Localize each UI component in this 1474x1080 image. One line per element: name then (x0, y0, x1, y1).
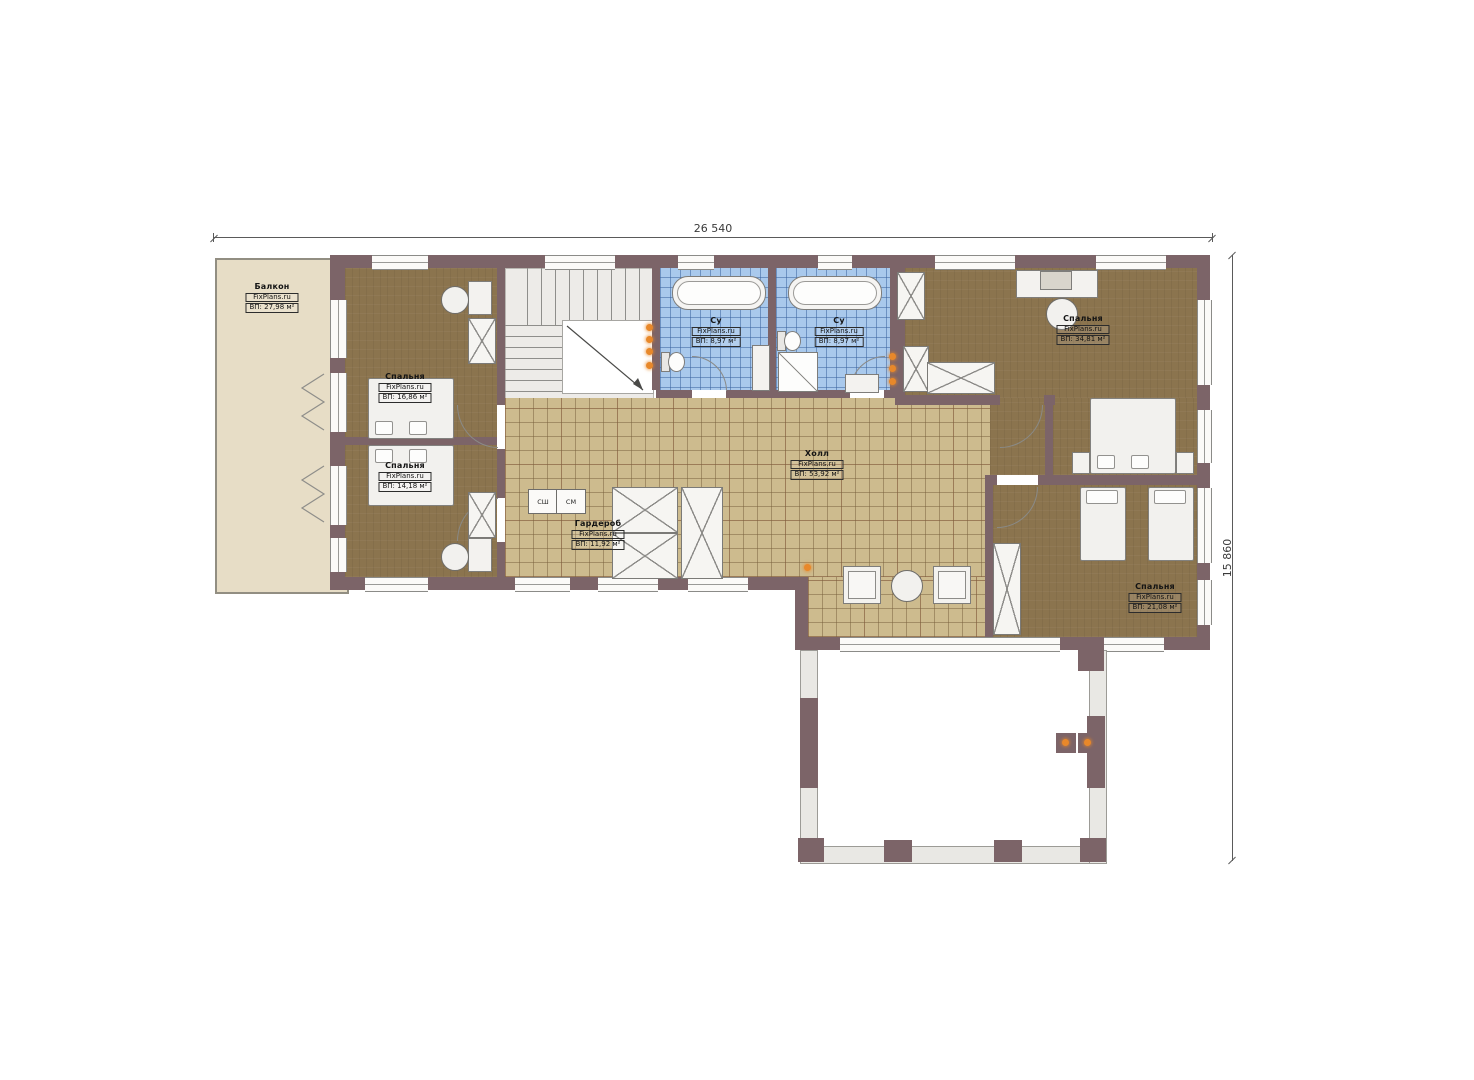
dimension-tick (1212, 233, 1213, 242)
wardrobe (681, 487, 723, 579)
window (598, 577, 658, 592)
light-dot (804, 564, 811, 571)
wall (795, 577, 808, 650)
window (330, 538, 347, 572)
wall (895, 395, 1000, 405)
light-dot (889, 365, 896, 372)
dimension-top: 26 540 (213, 222, 1213, 238)
floor-plan: СШ СМ Балкон FixPlans.ru ВП: 27,98 м² Сп… (0, 0, 1474, 1080)
wall (985, 485, 993, 637)
watermark: FixPlans.ru (571, 530, 624, 540)
pillow (409, 421, 427, 435)
wall (985, 475, 997, 485)
room-label-bedroom-br: Спальня FixPlans.ru ВП: 21,08 м² (1128, 583, 1181, 613)
shower (778, 352, 818, 392)
wardrobe (903, 346, 929, 392)
dryer: СШ (528, 489, 558, 514)
window (545, 255, 615, 270)
dimension-tick (210, 235, 218, 243)
wall (1045, 398, 1053, 475)
glazing-symbol (300, 372, 326, 434)
room-name: Холл (790, 450, 843, 459)
dresser (468, 538, 492, 572)
room-name: Су (692, 317, 741, 326)
wardrobe (927, 362, 995, 394)
window (1197, 300, 1212, 385)
glazing-symbol (300, 464, 326, 526)
wall (1038, 475, 1197, 485)
watermark: FixPlans.ru (245, 293, 298, 303)
room-label-bath-1: Су FixPlans.ru ВП: 8,97 м² (692, 317, 741, 347)
wardrobe (897, 272, 925, 320)
dryer-label: СШ (537, 498, 549, 506)
terrace-glass-door (840, 637, 1060, 652)
room-name: Су (815, 317, 864, 326)
window (678, 255, 714, 270)
bath-cabinet (752, 345, 770, 391)
room-area: ВП: 8,97 м² (815, 337, 864, 347)
watermark: FixPlans.ru (1056, 325, 1109, 335)
watermark: FixPlans.ru (692, 327, 741, 337)
wardrobe (468, 492, 496, 538)
room-area: ВП: 8,97 м² (692, 337, 741, 347)
dimension-line (213, 237, 1213, 238)
wardrobe (993, 543, 1021, 635)
room-area: ВП: 53,92 м² (790, 470, 843, 480)
room-area: ВП: 21,08 м² (1128, 603, 1181, 613)
light-dot (1062, 739, 1069, 746)
armchair-seat (938, 571, 966, 599)
armchair-seat (848, 571, 876, 599)
light-dot (889, 378, 896, 385)
wall (652, 268, 660, 390)
bathtub-basin (677, 281, 761, 305)
stairs-direction-arrow (505, 268, 652, 398)
pillow (1131, 455, 1149, 469)
terrace-railing (800, 846, 1107, 864)
balcony-door (330, 373, 347, 432)
light-dot (646, 348, 653, 355)
room-label-bedroom-bl: Спальня FixPlans.ru ВП: 14,18 м² (378, 462, 431, 492)
dimension-top-value: 26 540 (694, 222, 733, 235)
light-dot (1084, 739, 1091, 746)
door-opening (497, 498, 505, 542)
light-dot (646, 336, 653, 343)
window (935, 255, 1015, 270)
light-dot (646, 362, 653, 369)
washer-label: СМ (566, 498, 576, 506)
watermark: FixPlans.ru (378, 383, 431, 393)
window (818, 255, 852, 270)
desk-shelf (1040, 271, 1072, 290)
door-opening (497, 405, 505, 449)
window (365, 577, 428, 592)
bathtub (788, 276, 882, 310)
room-name: Спальня (378, 462, 431, 471)
window (688, 577, 748, 592)
room-area: ВП: 16,86 м² (378, 393, 431, 403)
window (1096, 255, 1166, 270)
pillow (375, 421, 393, 435)
chair (441, 286, 469, 314)
room-label-bath-2: Су FixPlans.ru ВП: 8,97 м² (815, 317, 864, 347)
window (1197, 488, 1212, 563)
room-name: Балкон (245, 283, 298, 292)
terrace-post (1078, 637, 1104, 671)
pillow (1097, 455, 1115, 469)
window (1197, 410, 1212, 463)
room-area: ВП: 27,98 м² (245, 303, 298, 313)
dimension-right-value: 15 860 (1221, 539, 1234, 578)
round-table (891, 570, 923, 602)
room-name: Спальня (1128, 583, 1181, 592)
terrace-post (798, 838, 824, 862)
toilet (668, 352, 685, 372)
light-dot (889, 353, 896, 360)
armchair (933, 566, 971, 604)
watermark: FixPlans.ru (790, 460, 843, 470)
washing-machine: СМ (556, 489, 586, 514)
room-label-bedroom-tr: Спальня FixPlans.ru ВП: 34,81 м² (1056, 315, 1109, 345)
room-area: ВП: 11,92 м² (571, 540, 624, 550)
room-label-hall: Холл FixPlans.ru ВП: 53,92 м² (790, 450, 843, 480)
wall (330, 255, 1210, 268)
room-label-wardrobe: Гардероб FixPlans.ru ВП: 11,92 м² (571, 520, 624, 550)
terrace-post (1080, 838, 1106, 862)
window (515, 577, 570, 592)
room-label-balcony: Балкон FixPlans.ru ВП: 27,98 м² (245, 283, 298, 313)
light-dot (646, 324, 653, 331)
watermark: FixPlans.ru (378, 472, 431, 482)
room-area: ВП: 34,81 м² (1056, 335, 1109, 345)
dimension-tick (213, 233, 214, 242)
watermark: FixPlans.ru (1128, 593, 1181, 603)
balcony-door (330, 466, 347, 525)
balcony-door (330, 300, 347, 358)
bathtub (672, 276, 766, 310)
nightstand (1072, 452, 1090, 474)
window (1100, 637, 1164, 652)
chair (441, 543, 469, 571)
window (372, 255, 428, 270)
sink (845, 374, 879, 393)
room-name: Спальня (1056, 315, 1109, 324)
dimension-right: 15 860 (1224, 255, 1242, 861)
room-area: ВП: 14,18 м² (378, 482, 431, 492)
terrace-post (800, 698, 818, 788)
room-name: Спальня (378, 373, 431, 382)
armchair (843, 566, 881, 604)
toilet (784, 331, 801, 351)
room-name: Гардероб (571, 520, 624, 529)
watermark: FixPlans.ru (815, 327, 864, 337)
bathtub-basin (793, 281, 877, 305)
dresser (468, 281, 492, 315)
pillow (1086, 490, 1118, 504)
room-label-bedroom-tl: Спальня FixPlans.ru ВП: 16,86 м² (378, 373, 431, 403)
pillow (1154, 490, 1186, 504)
terrace-post (884, 840, 912, 862)
terrace-post (994, 840, 1022, 862)
window (1197, 580, 1212, 625)
wardrobe (468, 318, 496, 364)
door-opening (692, 390, 726, 398)
nightstand (1176, 452, 1194, 474)
